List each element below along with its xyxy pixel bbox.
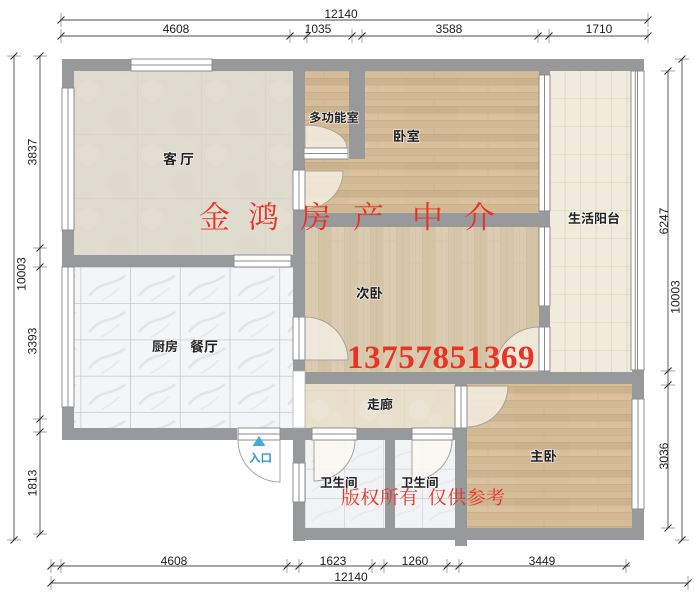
svg-text:1813: 1813 <box>26 469 40 496</box>
svg-text:10003: 10003 <box>669 280 683 314</box>
svg-text:1035: 1035 <box>305 22 332 36</box>
svg-text:12140: 12140 <box>334 570 368 584</box>
svg-text:13757851369: 13757851369 <box>347 340 535 376</box>
svg-text:3837: 3837 <box>26 138 40 165</box>
svg-text:3449: 3449 <box>529 554 556 568</box>
svg-text:1710: 1710 <box>586 22 613 36</box>
svg-text:6247: 6247 <box>657 207 671 234</box>
svg-text:3393: 3393 <box>26 327 40 354</box>
svg-text:4608: 4608 <box>163 22 190 36</box>
svg-text:3036: 3036 <box>657 442 671 469</box>
svg-text:10003: 10003 <box>15 257 29 291</box>
svg-text:1260: 1260 <box>402 554 429 568</box>
svg-text:3588: 3588 <box>436 22 463 36</box>
svg-text:12140: 12140 <box>324 7 358 21</box>
svg-text:1623: 1623 <box>320 554 347 568</box>
svg-text:4608: 4608 <box>161 554 188 568</box>
